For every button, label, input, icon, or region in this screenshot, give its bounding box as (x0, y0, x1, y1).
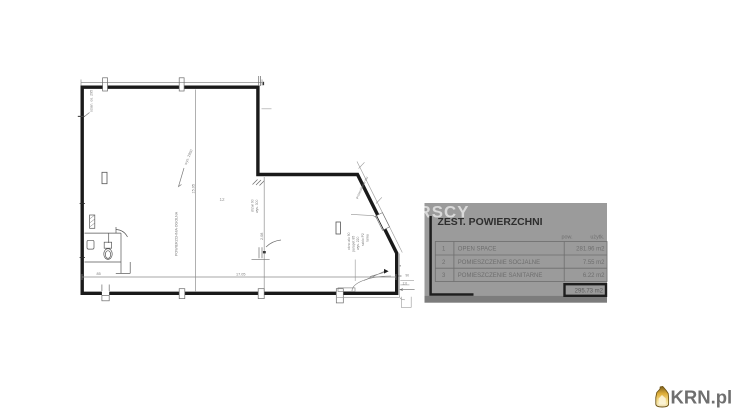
svg-text:90: 90 (406, 274, 410, 278)
svg-text:85: 85 (97, 272, 101, 276)
svg-text:281.96 m2: 281.96 m2 (576, 247, 605, 253)
svg-text:okno alu 90: okno alu 90 (347, 232, 351, 250)
svg-text:POMIESZCZENIE SANITARNE: POMIESZCZENIE SANITARNE (458, 273, 543, 279)
svg-text:15.05: 15.05 (192, 184, 196, 194)
svg-text:POMIESZCZENIE SOCJALNE: POMIESZCZENIE SOCJALNE (458, 260, 540, 266)
svg-text:scian. os. 295: scian. os. 295 (90, 90, 94, 112)
svg-text:KRN.pl: KRN.pl (671, 387, 733, 408)
svg-text:7.55 m2: 7.55 m2 (583, 260, 605, 266)
svg-text:295.73 m2: 295.73 m2 (575, 289, 604, 295)
svg-text:OPEN SPACE: OPEN SPACE (458, 247, 497, 253)
svg-text:ZEST. POWIERZCHNI: ZEST. POWIERZCHNI (438, 217, 543, 228)
svg-text:parapet 85: parapet 85 (352, 236, 356, 252)
svg-text:wys. 300: wys. 300 (255, 200, 259, 213)
svg-text:2.08: 2.08 (260, 233, 264, 240)
svg-text:szklo P2: szklo P2 (361, 233, 365, 246)
svg-text:2.0: 2.0 (403, 281, 408, 285)
svg-text:użytk.: użytk. (590, 234, 604, 240)
svg-text:drzwi 90: drzwi 90 (251, 199, 255, 212)
svg-text:6.22 m2: 6.22 m2 (583, 273, 605, 279)
svg-text:wys. 220: wys. 220 (356, 237, 360, 250)
svg-text:17.05: 17.05 (236, 273, 246, 277)
svg-text:POWIERZCHNIA OGOLNA: POWIERZCHNIA OGOLNA (175, 211, 179, 256)
svg-text:wys. 2950: wys. 2950 (184, 149, 194, 166)
svg-text:rama: rama (366, 234, 370, 242)
svg-text:pow.: pow. (562, 234, 573, 240)
svg-text:12: 12 (220, 197, 226, 202)
